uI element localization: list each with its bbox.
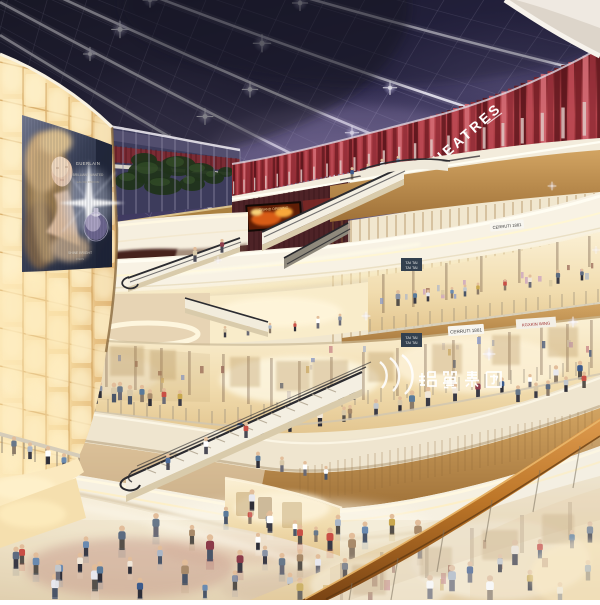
svg-text:TAI TAI: TAI TAI xyxy=(405,336,417,340)
svg-text:GUERLAIN: GUERLAIN xyxy=(76,161,101,166)
svg-text:EAU DE PARFUM: EAU DE PARFUM xyxy=(77,180,100,184)
svg-text:TAI TAI: TAI TAI xyxy=(405,266,417,270)
svg-text:TAI TAI: TAI TAI xyxy=(405,261,417,265)
svg-text:PARIS: PARIS xyxy=(76,257,84,261)
svg-text:BRILLIANT WANTED: BRILLIANT WANTED xyxy=(73,173,104,177)
svg-text:SHINE BRIGHT: SHINE BRIGHT xyxy=(68,251,92,255)
svg-text:TAI TAI: TAI TAI xyxy=(405,341,417,345)
